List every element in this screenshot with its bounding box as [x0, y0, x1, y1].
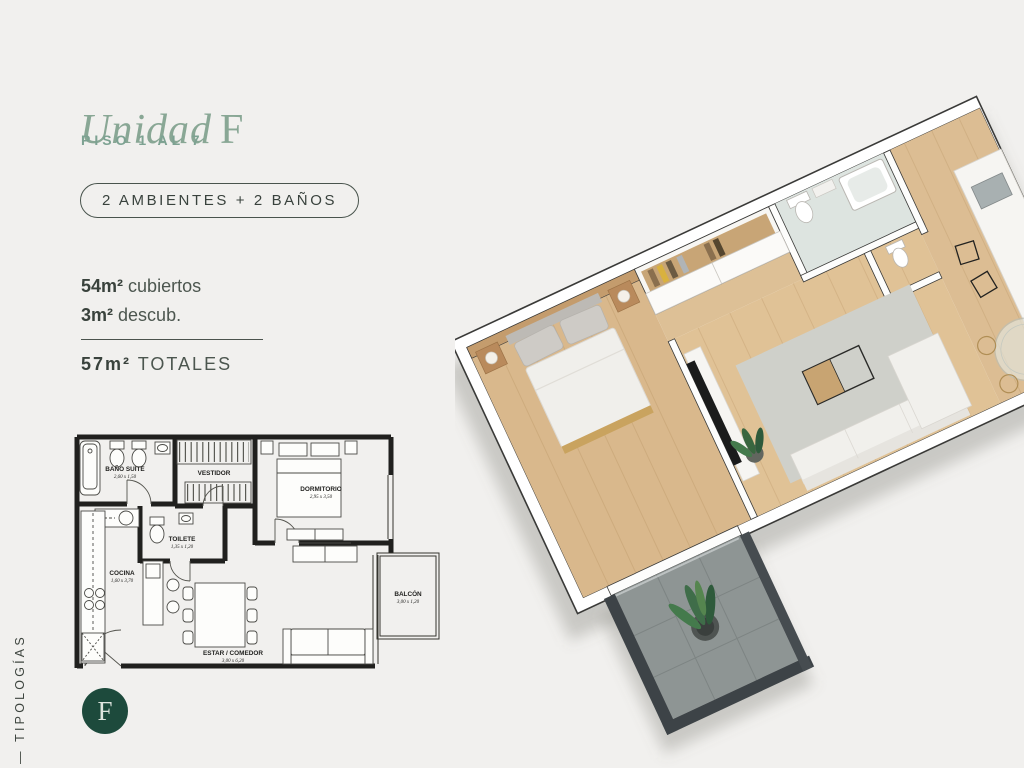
tv-unit-2d [293, 543, 357, 562]
total-area-value: 57m² [81, 354, 131, 374]
floors-subtitle: PISO 1 AL 7 [81, 132, 204, 148]
plan-windows [373, 475, 439, 664]
svg-text:2,95 x 3,50: 2,95 x 3,50 [310, 495, 333, 500]
uncovered-area-value: 3m² [81, 305, 113, 325]
typology-sheet: UnidadF PISO 1 AL 7 2 AMBIENTES + 2 BAÑO… [0, 0, 1024, 768]
svg-text:3,00 x 6,20: 3,00 x 6,20 [222, 659, 245, 664]
svg-text:VESTIDOR: VESTIDOR [198, 470, 231, 477]
kitchen-counter-2d [81, 511, 105, 663]
room-label-balcon: BALCÓN 3,00 x 1,20 [394, 589, 422, 605]
covered-area-label: cubiertos [128, 276, 201, 296]
toilet-guest [150, 517, 164, 543]
unit-letter: F [97, 696, 112, 727]
floorplan-2d: BAÑO SUITE 2,60 x 1,50 VESTIDOR DORMITOR… [73, 433, 449, 677]
sink-suite [155, 442, 170, 454]
bathtub [80, 441, 100, 495]
svg-text:BAÑO SUITE: BAÑO SUITE [105, 464, 145, 473]
room-label-banosuite: BAÑO SUITE 2,60 x 1,50 [105, 464, 145, 480]
tipologias-vertical-label: — TIPOLOGÍAS [13, 634, 27, 764]
sink-guest [179, 513, 193, 524]
uncovered-area-label: descub. [118, 305, 181, 325]
toilet-suite [110, 441, 124, 467]
total-area-line: 57m² TOTALES [81, 350, 263, 379]
bed-2d [261, 441, 357, 517]
svg-text:ESTAR / COMEDOR: ESTAR / COMEDOR [203, 650, 263, 657]
svg-text:1,35 x 1,20: 1,35 x 1,20 [171, 545, 194, 550]
kitchen-island-2d [143, 561, 179, 625]
render-3d [455, 25, 1024, 768]
sofa-2d [283, 629, 373, 664]
title-unit-letter: F [220, 107, 243, 153]
room-label-cocina: COCINA 1,60 x 3,70 [109, 570, 135, 584]
svg-text:COCINA: COCINA [109, 570, 135, 577]
svg-text:DORMITORIO: DORMITORIO [300, 486, 341, 493]
bidet [132, 441, 146, 467]
areas-divider [81, 339, 263, 340]
covered-area-value: 54m² [81, 276, 123, 296]
unit-letter-badge: F [82, 688, 128, 734]
dining-table-2d [183, 583, 257, 647]
areas-block: 54m² cubiertos 3m² descub. 57m² TOTALES [81, 272, 263, 379]
total-area-label: TOTALES [138, 354, 232, 374]
svg-text:BALCÓN: BALCÓN [394, 589, 422, 598]
dresser-2d [287, 529, 343, 540]
covered-area-line: 54m² cubiertos [81, 272, 263, 301]
rooms-badge: 2 AMBIENTES + 2 BAÑOS [80, 183, 359, 218]
uncovered-area-line: 3m² descub. [81, 301, 263, 330]
room-label-toilete: TOILETE 1,35 x 1,20 [169, 536, 197, 550]
room-label-estar: ESTAR / COMEDOR 3,00 x 6,20 [203, 650, 263, 664]
svg-text:TOILETE: TOILETE [169, 536, 197, 543]
svg-text:2,60 x 1,50: 2,60 x 1,50 [114, 475, 137, 480]
room-label-vestidor: VESTIDOR [198, 470, 231, 477]
svg-text:3,00 x 1,20: 3,00 x 1,20 [397, 600, 420, 605]
svg-text:1,60 x 3,70: 1,60 x 3,70 [111, 579, 134, 584]
